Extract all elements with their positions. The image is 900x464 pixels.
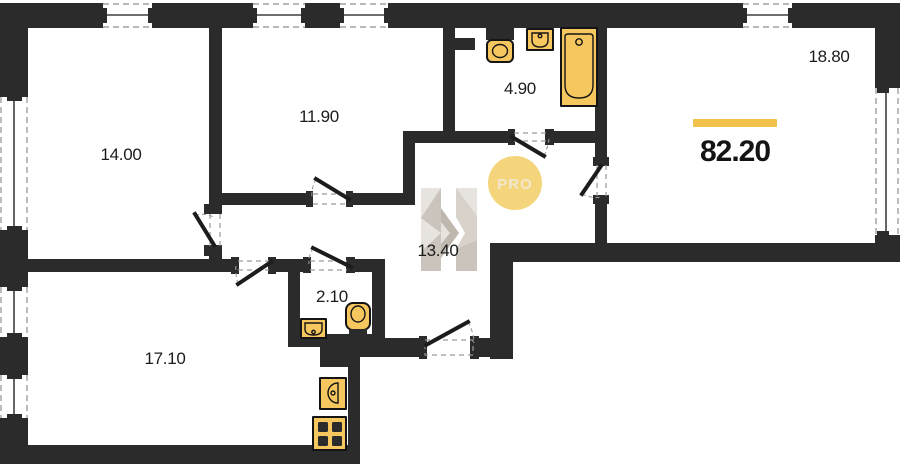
window [875,87,900,237]
stove-icon [313,417,346,450]
total-area-accent-bar [693,119,777,127]
door-entrance [419,322,479,359]
wc-sink-icon [301,319,326,338]
door-kitchen-living [231,257,276,284]
window [102,3,153,28]
wall-segment [490,243,898,262]
window [0,286,28,338]
room-label-hallway: 13.40 [417,241,458,260]
wall-segment [213,193,312,205]
wc-toilet-icon [346,303,370,346]
room-label-kitchen-living: 17.10 [144,349,185,368]
door-living-room [582,157,609,204]
wall-segment [0,230,28,287]
wall-segment [272,259,308,272]
wall-segment [347,193,415,205]
bathtub-icon [561,28,597,106]
wall-segment [490,243,513,359]
wall-segment [548,131,607,143]
pro-badge-label: PRO [497,176,533,193]
room-label-bedroom-left: 14.00 [100,145,141,164]
total-area-label: 82.20 [700,135,770,168]
window [0,374,28,419]
wall-segment [305,3,340,28]
wall-segment [875,3,900,88]
toilet-icon [486,28,514,62]
wall-segment [0,3,28,97]
room-label-living-room: 18.80 [808,47,849,66]
floorplan-canvas: PRO [0,0,900,464]
wall-segment [443,23,455,143]
door-bedroom-middle [306,179,353,207]
wall-segment [28,445,360,464]
door-wc [303,248,355,273]
door-bathroom [508,129,554,156]
kitchen-sink-icon [320,378,346,409]
wall-segment [0,418,28,464]
floorplan-svg: PRO [0,0,900,464]
room-label-bathroom: 4.90 [504,79,536,98]
window [0,96,28,231]
wall-segment [348,357,360,452]
wall-segment [28,259,235,272]
window [742,3,793,28]
wall-segment [152,3,253,28]
room-label-bedroom-middle: 11.90 [299,107,339,126]
wall-segment [372,259,385,347]
window [252,3,306,28]
wall-segment [209,28,222,214]
wall-segment [388,3,743,28]
wall-segment [403,131,513,143]
wall-segment [455,38,475,50]
window [339,3,389,28]
room-label-wc: 2.10 [316,287,348,306]
door-bedroom-left [195,204,222,256]
wall-segment [595,197,607,255]
wall-segment [0,337,28,375]
